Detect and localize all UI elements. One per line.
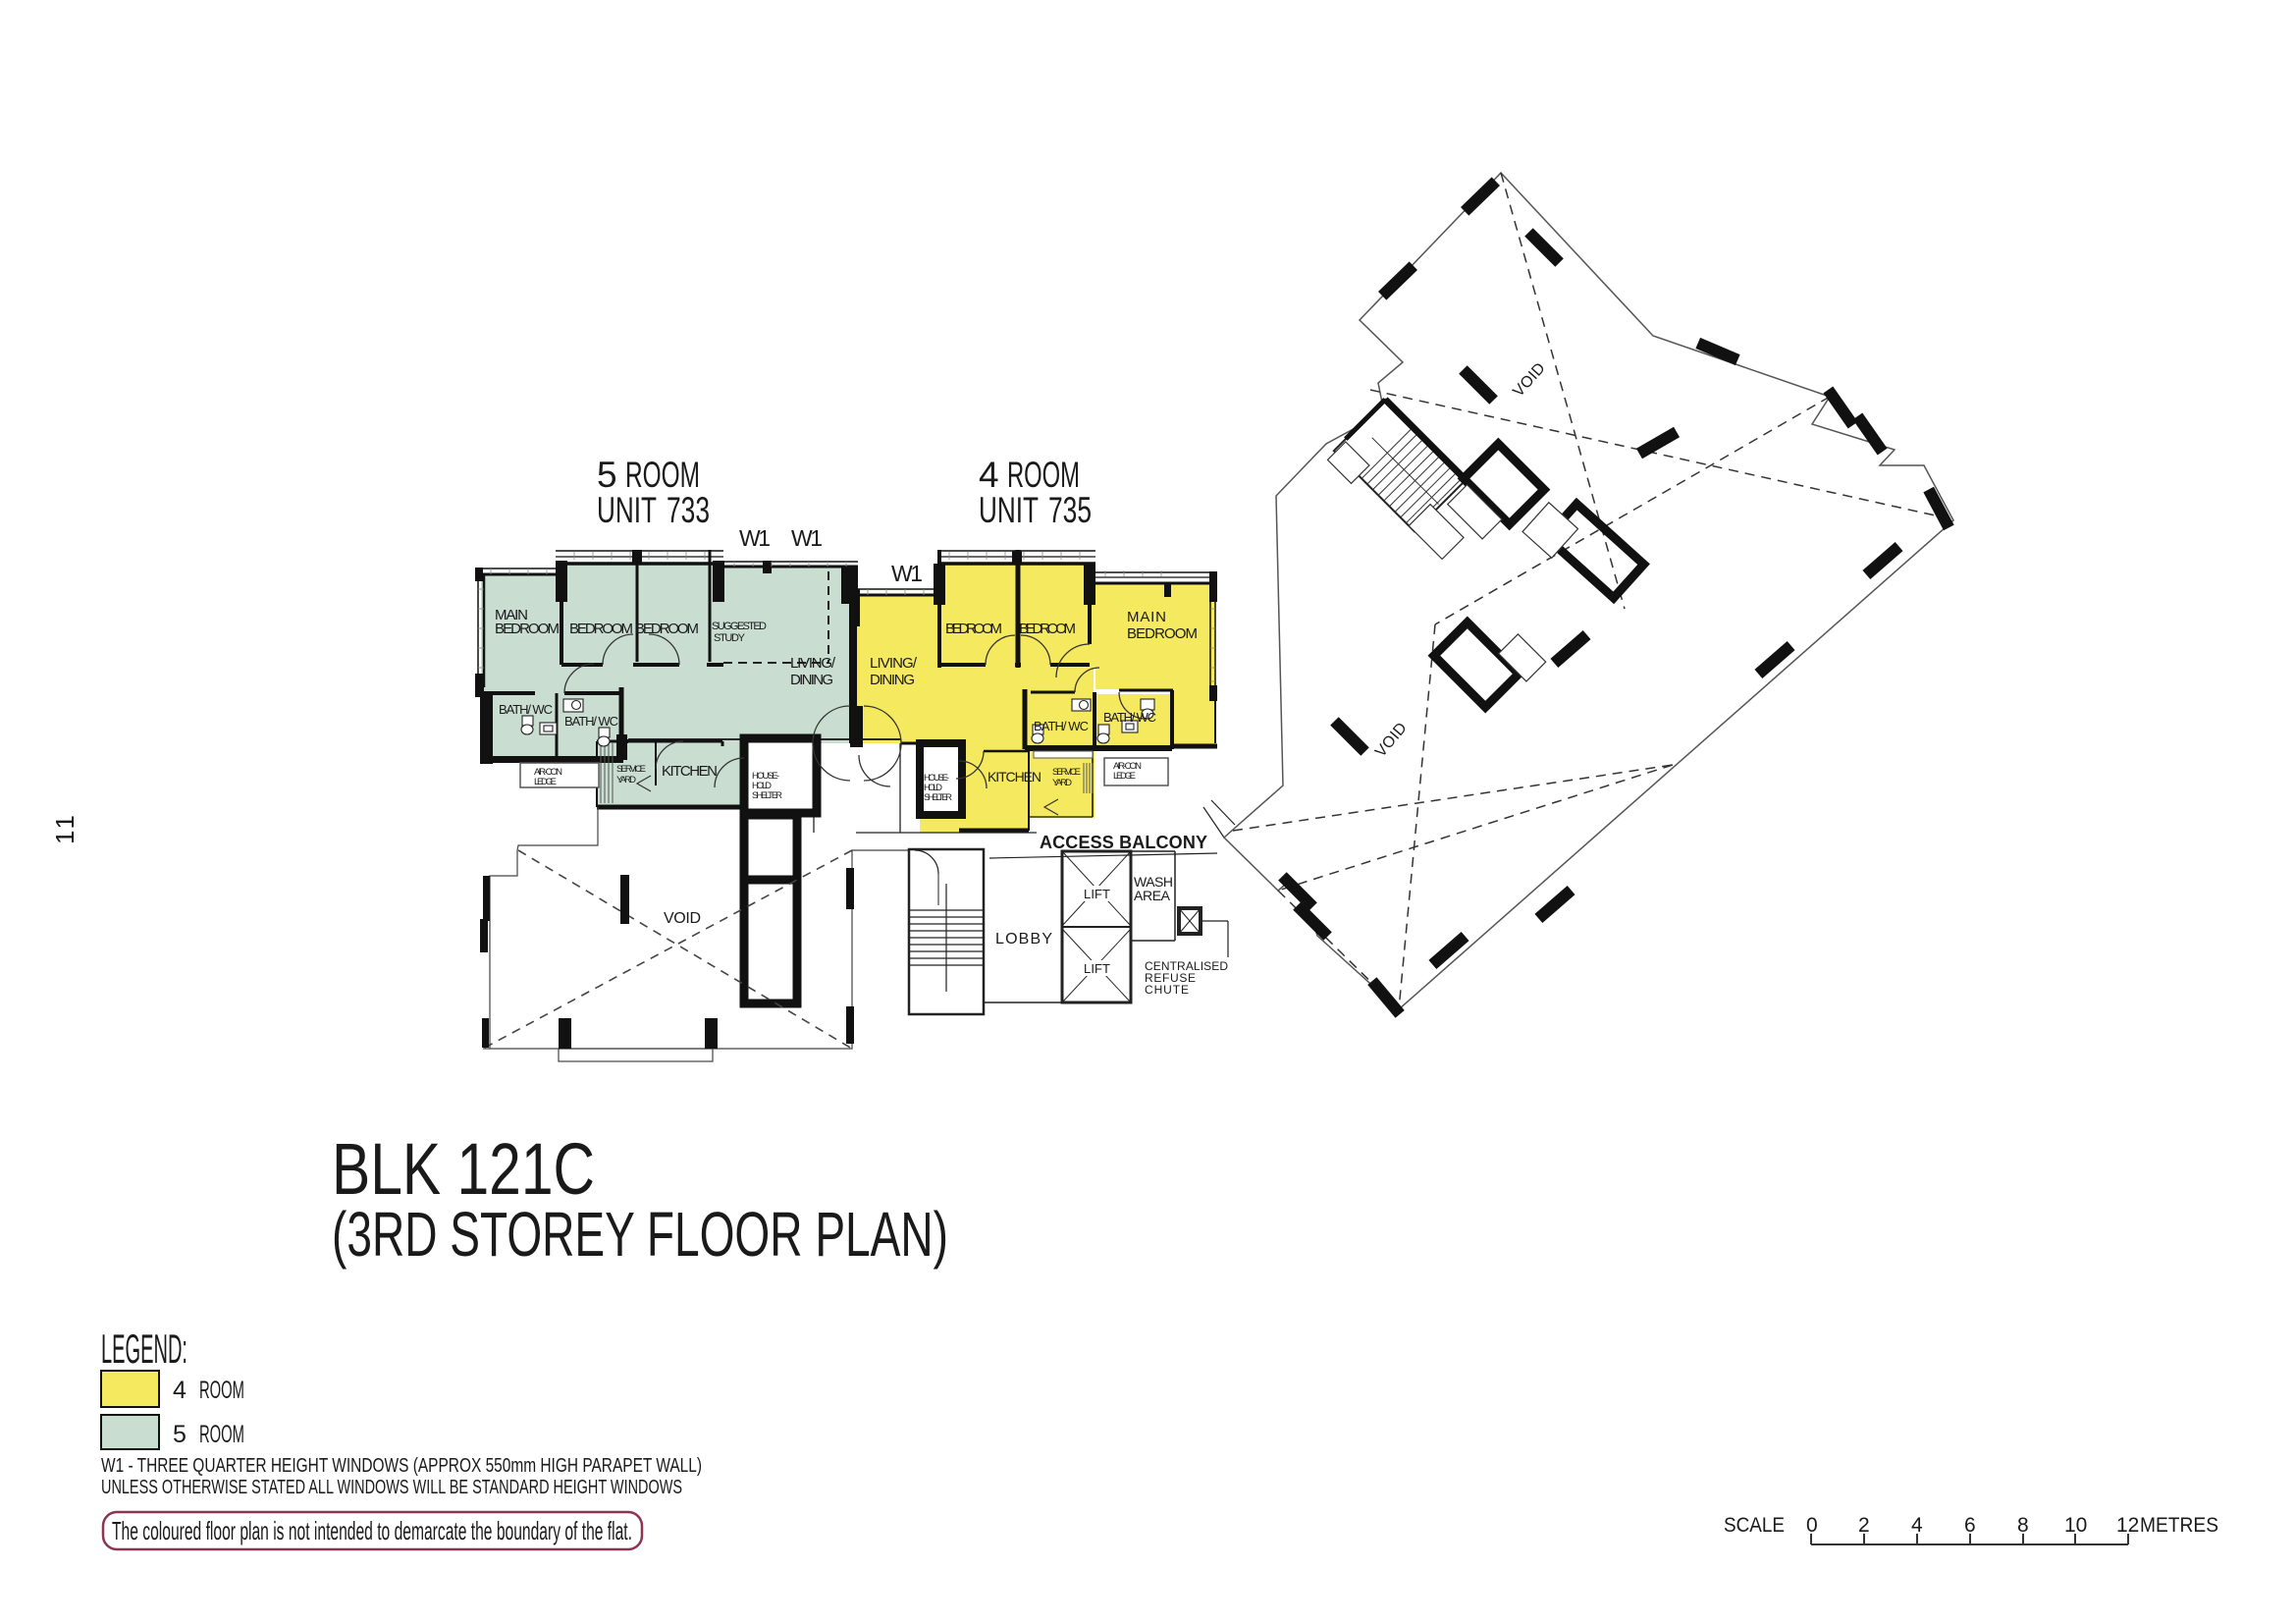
svg-text:SHELTER: SHELTER (752, 790, 782, 801)
svg-text:6: 6 (1964, 1514, 1976, 1537)
svg-text:W1: W1 (891, 561, 923, 586)
svg-text:LIFT: LIFT (1084, 961, 1110, 976)
svg-text:4: 4 (173, 1377, 187, 1404)
svg-text:8: 8 (2017, 1514, 2029, 1537)
svg-text:LEGEND:: LEGEND: (101, 1326, 187, 1372)
svg-text:LOBBY: LOBBY (995, 931, 1052, 947)
svg-text:UNLESS OTHERWISE STATED ALL WI: UNLESS OTHERWISE STATED ALL WINDOWS WILL… (101, 1477, 682, 1498)
svg-text:10: 10 (2064, 1514, 2087, 1537)
svg-text:W1: W1 (791, 525, 823, 551)
svg-text:SCALE: SCALE (1724, 1514, 1785, 1537)
svg-text:BEDROOM: BEDROOM (1019, 621, 1076, 637)
svg-text:AREA: AREA (1134, 888, 1171, 903)
svg-text:LEDGE: LEDGE (534, 777, 557, 787)
svg-text:KITCHEN: KITCHEN (988, 769, 1041, 785)
svg-text:ACCESS BALCONY: ACCESS BALCONY (1040, 833, 1207, 852)
svg-text:0: 0 (1806, 1514, 1818, 1537)
svg-text:12: 12 (2116, 1514, 2139, 1537)
svg-text:KITCHEN: KITCHEN (662, 763, 718, 780)
svg-text:BEDROOM: BEDROOM (945, 621, 1002, 637)
svg-text:UNIT: UNIT (597, 490, 657, 530)
svg-text:BATH/ WC: BATH/ WC (564, 714, 618, 729)
svg-text:5: 5 (173, 1421, 187, 1448)
svg-text:735: 735 (1048, 490, 1092, 530)
svg-text:BATH/ WC: BATH/ WC (1103, 710, 1156, 725)
svg-text:4: 4 (979, 455, 999, 495)
svg-text:LEDGE: LEDGE (1113, 771, 1136, 782)
svg-text:MAIN: MAIN (1127, 609, 1166, 625)
svg-text:11: 11 (50, 815, 80, 844)
svg-text:BEDROOM: BEDROOM (1127, 625, 1198, 642)
svg-text:4: 4 (1911, 1514, 1923, 1537)
svg-text:W1 - THREE QUARTER HEIGHT WIND: W1 - THREE QUARTER HEIGHT WINDOWS (APPRO… (101, 1455, 702, 1477)
svg-text:BLK 121C: BLK 121C (332, 1128, 595, 1210)
svg-text:UNIT: UNIT (979, 490, 1039, 530)
svg-text:DINING: DINING (790, 672, 833, 688)
svg-text:YARD: YARD (616, 775, 636, 785)
svg-text:DINING: DINING (870, 672, 915, 688)
svg-text:733: 733 (667, 490, 710, 530)
svg-text:LIVING/: LIVING/ (790, 655, 836, 672)
svg-text:The coloured floor plan is not: The coloured floor plan is not intended … (112, 1516, 632, 1545)
svg-text:VOID: VOID (664, 910, 701, 927)
svg-text:BEDROOM: BEDROOM (635, 621, 699, 637)
svg-text:STUDY: STUDY (714, 632, 746, 644)
svg-text:ROOM: ROOM (199, 1377, 244, 1404)
svg-text:ROOM: ROOM (1007, 455, 1080, 495)
svg-text:YARD: YARD (1052, 778, 1072, 788)
svg-text:W1: W1 (739, 525, 771, 551)
svg-text:ROOM: ROOM (625, 455, 700, 495)
svg-text:SUGGESTED: SUGGESTED (712, 621, 767, 632)
svg-text:METRES: METRES (2140, 1514, 2218, 1537)
svg-text:ROOM: ROOM (199, 1421, 244, 1448)
svg-text:5: 5 (597, 455, 617, 495)
svg-text:SHELTER: SHELTER (924, 792, 952, 803)
svg-text:BEDROOM: BEDROOM (495, 621, 560, 637)
svg-text:SERVICE: SERVICE (1052, 767, 1081, 778)
svg-text:(3RD STOREY FLOOR PLAN): (3RD STOREY FLOOR PLAN) (332, 1199, 948, 1270)
svg-text:BATH/ WC: BATH/ WC (499, 702, 553, 717)
svg-text:BEDROOM: BEDROOM (569, 621, 633, 637)
svg-text:2: 2 (1858, 1514, 1870, 1537)
svg-text:SERVICE: SERVICE (616, 764, 646, 775)
svg-text:BATH/ WC: BATH/ WC (1034, 719, 1089, 733)
svg-text:LIFT: LIFT (1084, 887, 1110, 901)
svg-text:CHUTE: CHUTE (1145, 983, 1189, 997)
svg-text:LIVING/: LIVING/ (870, 655, 918, 672)
